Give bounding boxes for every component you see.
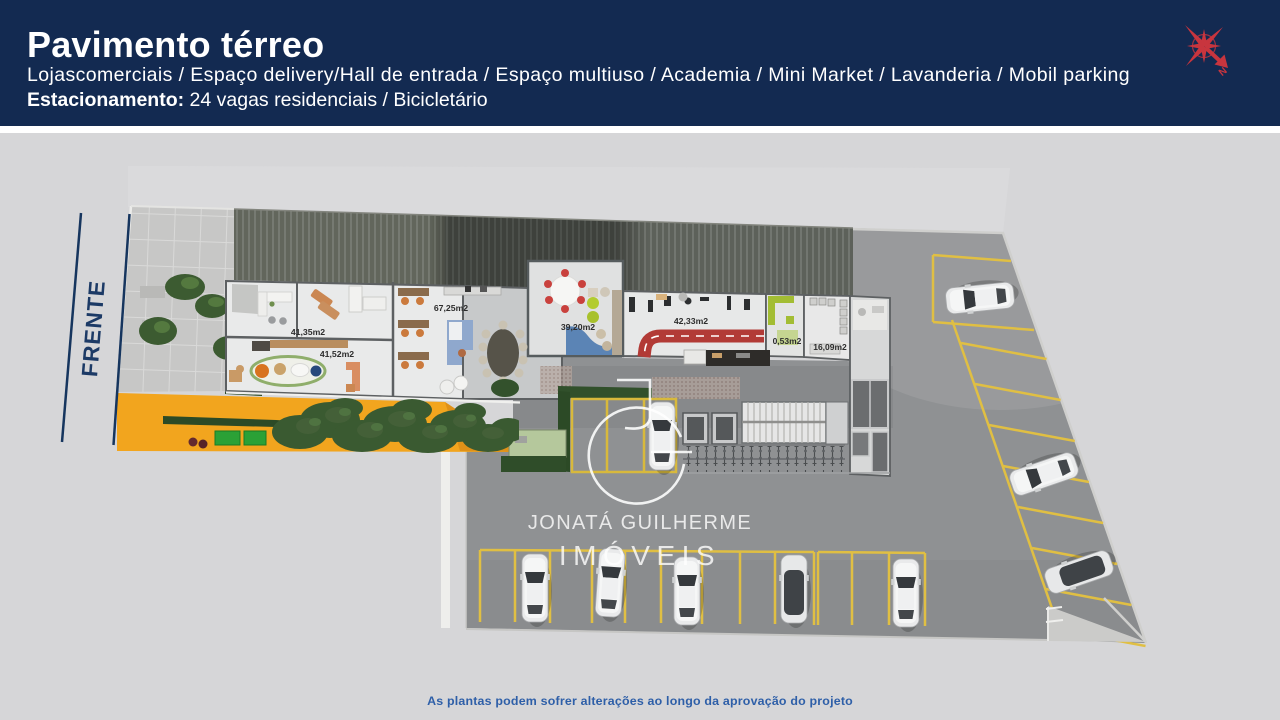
svg-text:FRENTE: FRENTE	[77, 279, 110, 378]
svg-text:0,53m2: 0,53m2	[773, 336, 802, 346]
svg-text:JONATÁ GUILHERME: JONATÁ GUILHERME	[528, 511, 752, 534]
svg-text:IMÓVEIS: IMÓVEIS	[559, 540, 721, 571]
svg-text:39,20m2: 39,20m2	[561, 322, 595, 332]
svg-text:42,33m2: 42,33m2	[674, 316, 708, 326]
svg-text:67,25m2: 67,25m2	[434, 303, 468, 313]
svg-text:41,52m2: 41,52m2	[320, 349, 354, 359]
svg-text:41,35m2: 41,35m2	[291, 327, 325, 337]
svg-text:16,09m2: 16,09m2	[813, 342, 847, 352]
